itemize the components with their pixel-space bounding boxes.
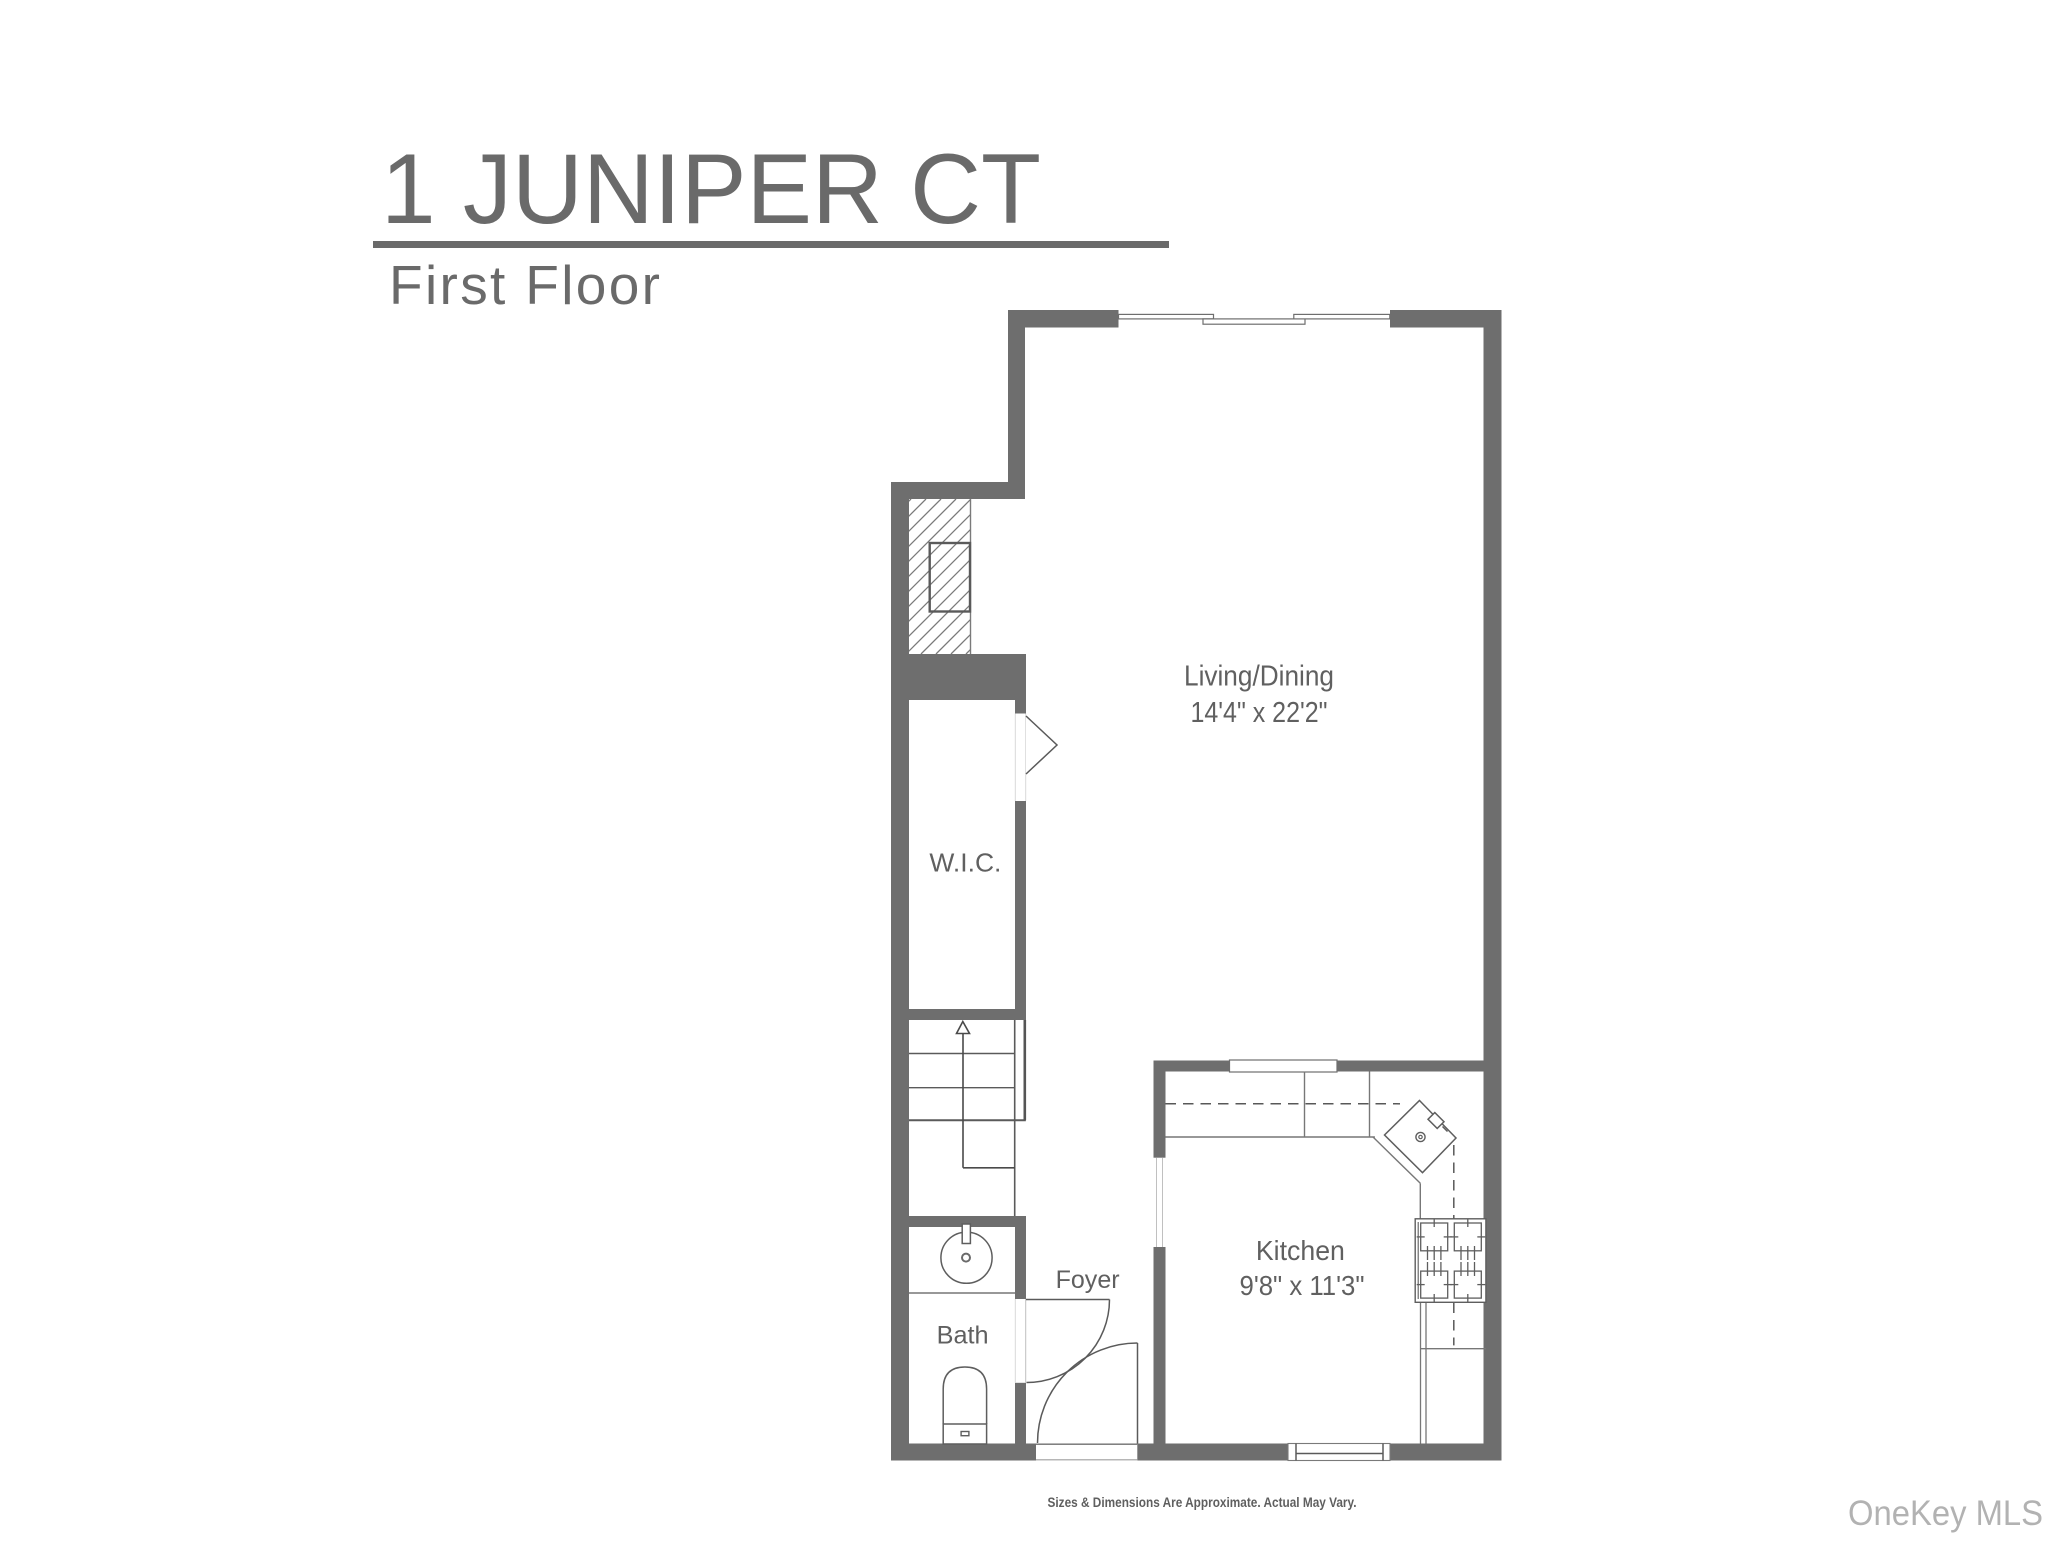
svg-text:W.I.C.: W.I.C. bbox=[929, 848, 1001, 878]
svg-text:Sizes & Dimensions Are Approxi: Sizes & Dimensions Are Approximate. Actu… bbox=[1048, 1494, 1357, 1510]
svg-text:14'4" x 22'2": 14'4" x 22'2" bbox=[1191, 697, 1328, 729]
svg-text:Living/Dining: Living/Dining bbox=[1184, 661, 1334, 693]
svg-text:Kitchen: Kitchen bbox=[1256, 1235, 1345, 1266]
svg-text:9'8" x 11'3": 9'8" x 11'3" bbox=[1240, 1270, 1365, 1301]
svg-text:OneKey MLS: OneKey MLS bbox=[1848, 1494, 2043, 1533]
svg-text:1 JUNIPER CT: 1 JUNIPER CT bbox=[381, 133, 1041, 244]
svg-text:Bath: Bath bbox=[937, 1322, 989, 1350]
svg-text:First Floor: First Floor bbox=[389, 254, 660, 316]
svg-text:Foyer: Foyer bbox=[1056, 1266, 1120, 1294]
